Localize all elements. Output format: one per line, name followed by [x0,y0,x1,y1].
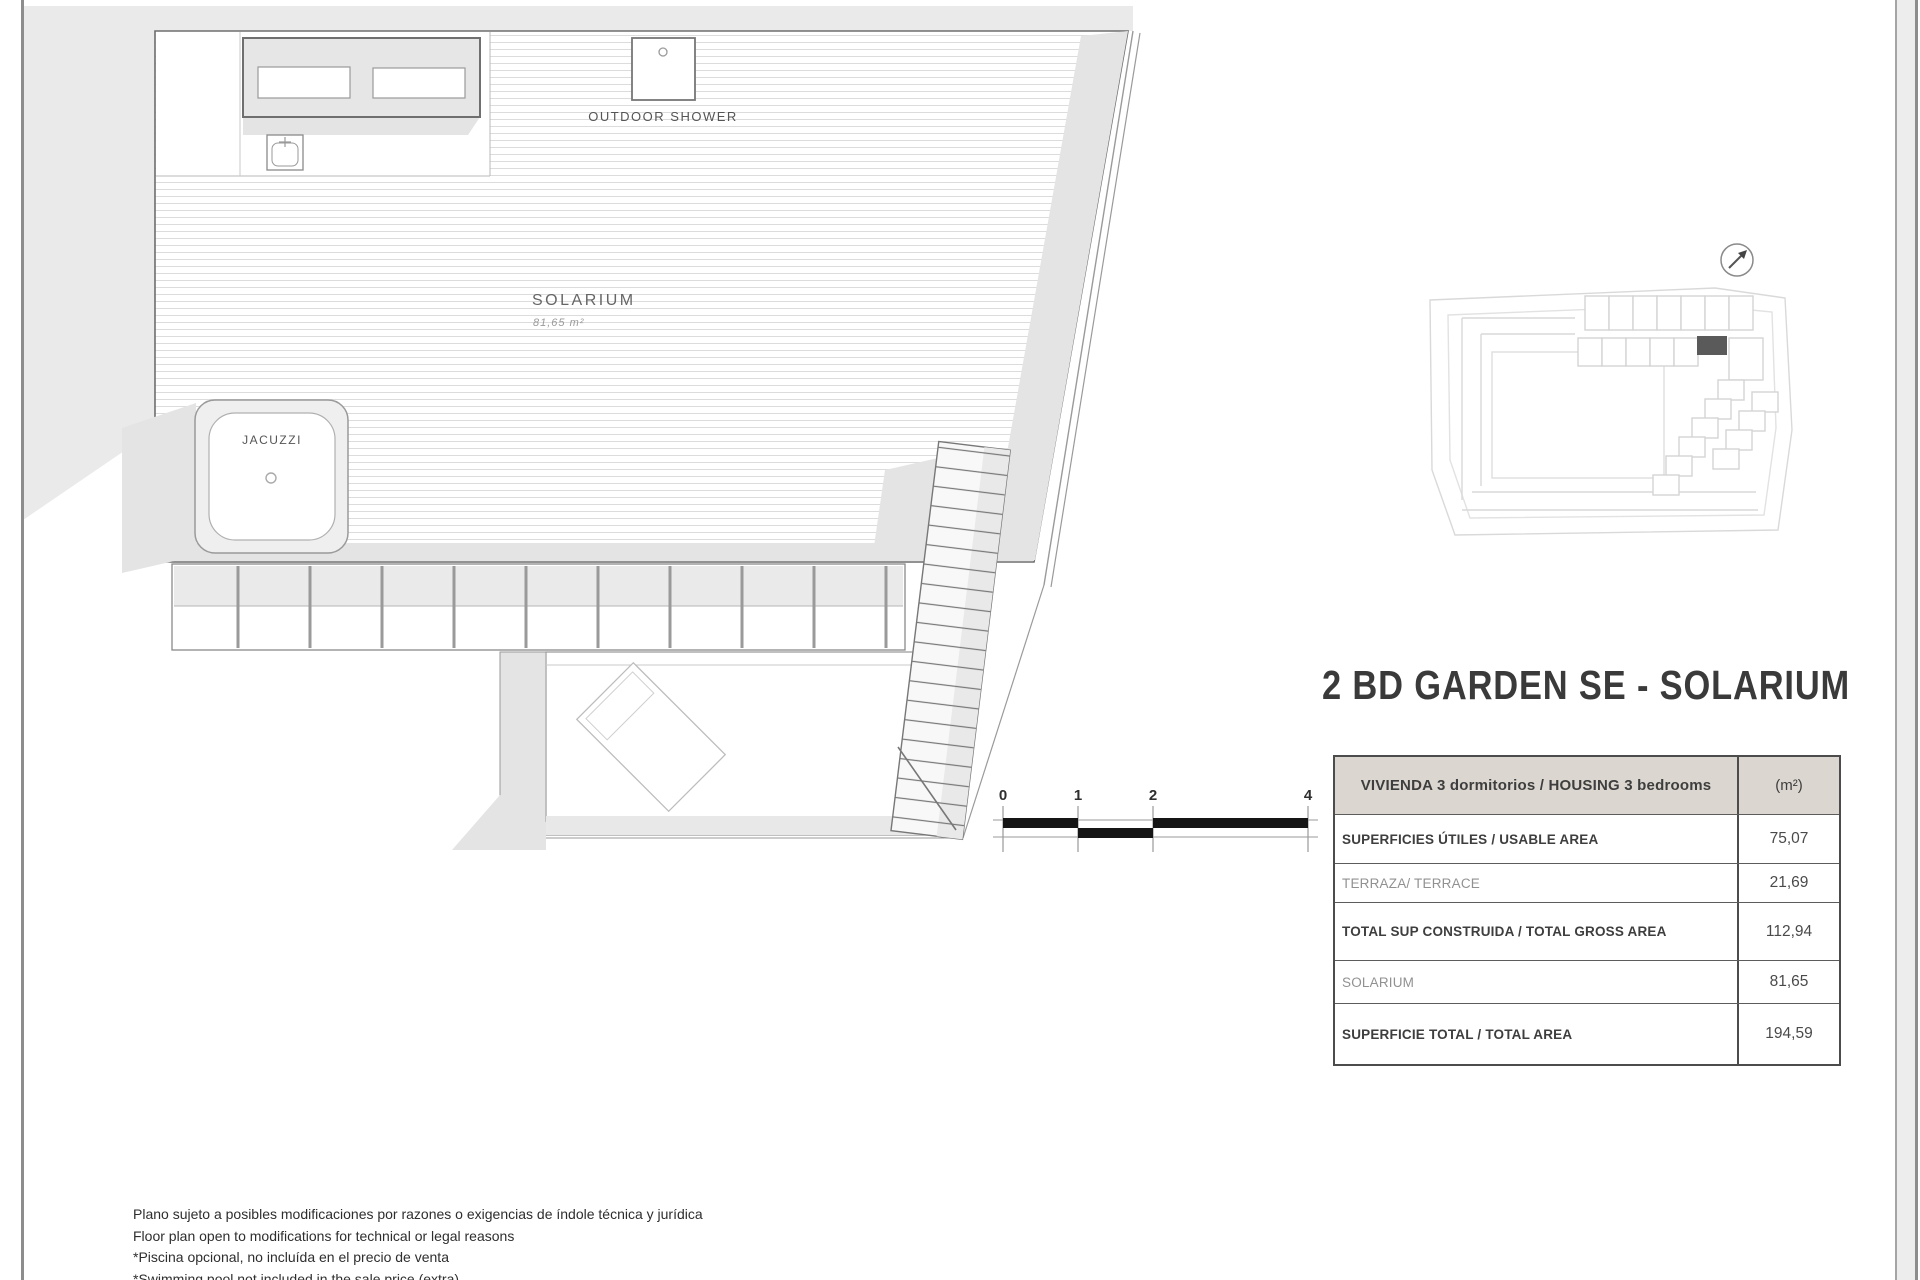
disclaimer-line: Floor plan open to modifications for tec… [133,1226,703,1248]
table-header-unit: (m²) [1737,757,1839,814]
row-label: TOTAL SUP CONSTRUIDA / TOTAL GROSS AREA [1335,903,1737,960]
solarium-area-label: 81,65 m² [533,317,584,329]
disclaimer-line: *Piscina opcional, no incluída en el pre… [133,1247,703,1269]
shower-drain-icon [659,48,667,56]
scale-bar: 0 1 2 4 [993,787,1318,852]
sink [267,135,303,170]
row-label: SUPERFICIES ÚTILES / USABLE AREA [1335,815,1737,863]
outdoor-kitchen [156,32,490,176]
areas-table: VIVIENDA 3 dormitorios / HOUSING 3 bedro… [1333,755,1841,1066]
row-value: 75,07 [1737,815,1839,863]
page-title: 2 BD GARDEN SE - SOLARIUM [1322,662,1850,709]
row-value: 21,69 [1737,864,1839,902]
solarium-label: SOLARIUM [532,292,636,309]
row-label: SOLARIUM [1335,961,1737,1003]
table-row: TOTAL SUP CONSTRUIDA / TOTAL GROSS AREA … [1335,902,1839,960]
row-value: 194,59 [1737,1004,1839,1064]
scale-tick-4: 4 [1304,787,1313,804]
highlighted-unit [1697,336,1727,355]
disclaimer-block: Plano sujeto a posibles modificaciones p… [133,1204,703,1280]
disclaimer-line: *Swimming pool not included in the sale … [133,1269,703,1280]
scale-tick-0: 0 [999,787,1007,804]
row-label: TERRAZA/ TERRACE [1335,864,1737,902]
jacuzzi-drain-icon [266,473,276,483]
table-header-row: VIVIENDA 3 dormitorios / HOUSING 3 bedro… [1335,757,1839,814]
floor-plan-drawing: OUTDOOR SHOWER SOLARIUM 81,65 m² JACUZZI [0,0,1920,1280]
jacuzzi-shadow [122,403,196,573]
north-arrow-icon [1721,244,1753,276]
jacuzzi: JACUZZI [195,400,348,553]
jacuzzi-label: JACUZZI [242,433,302,447]
table-row: TERRAZA/ TERRACE 21,69 [1335,863,1839,902]
row-value: 81,65 [1737,961,1839,1003]
outdoor-shower-label: OUTDOOR SHOWER [588,109,738,124]
table-row: SUPERFICIE TOTAL / TOTAL AREA 194,59 [1335,1003,1839,1064]
site-key-map [1430,288,1792,535]
scale-tick-1: 1 [1074,787,1082,804]
table-row: SUPERFICIES ÚTILES / USABLE AREA 75,07 [1335,814,1839,863]
table-header-label: VIVIENDA 3 dormitorios / HOUSING 3 bedro… [1335,757,1737,814]
row-label: SUPERFICIE TOTAL / TOTAL AREA [1335,1004,1737,1064]
disclaimer-line: Plano sujeto a posibles modificaciones p… [133,1204,703,1226]
table-row: SOLARIUM 81,65 [1335,960,1839,1003]
floor-plan-sheet: OUTDOOR SHOWER SOLARIUM 81,65 m² JACUZZI [0,0,1920,1280]
row-value: 112,94 [1737,903,1839,960]
terrace-railing [172,564,905,650]
scale-tick-2: 2 [1149,787,1157,804]
